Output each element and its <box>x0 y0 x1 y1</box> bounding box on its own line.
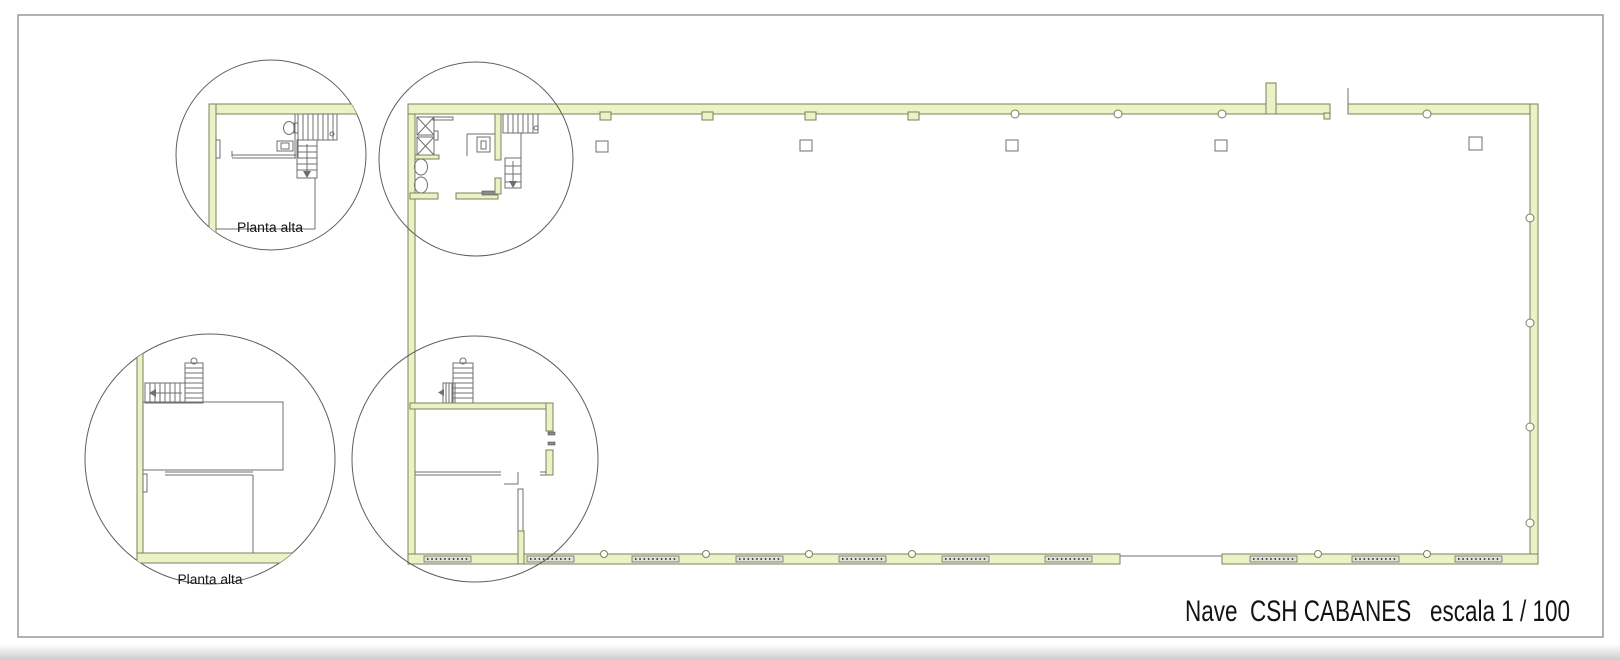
shower-icon <box>417 137 434 155</box>
detail-planta-alta-bottom: Planta alta <box>137 333 307 587</box>
room-wall <box>546 450 553 475</box>
room-wall <box>410 403 553 409</box>
door-jamb <box>216 140 220 158</box>
door-swing <box>504 472 518 484</box>
detail-circle-lower-ground <box>352 336 598 582</box>
partition-wall <box>415 155 439 159</box>
partition-wall <box>410 193 438 199</box>
pilasters <box>600 110 1534 558</box>
column <box>1006 140 1018 151</box>
stairs-icon <box>297 114 337 178</box>
partition-wall <box>495 178 501 194</box>
shower-icon <box>417 117 434 135</box>
window-mark <box>548 432 555 435</box>
service-rooms <box>410 114 538 199</box>
toilet-icon <box>284 122 299 135</box>
column <box>596 141 608 152</box>
window-mark <box>548 442 555 445</box>
column <box>800 140 812 151</box>
detail-planta-alta-top: Planta alta <box>209 104 360 235</box>
left-wall <box>408 104 415 564</box>
wall-stub <box>1266 83 1276 114</box>
toilet-icon <box>477 137 490 152</box>
stairs-icon <box>145 358 203 403</box>
door-jamb <box>434 131 438 140</box>
door-jamb <box>1324 113 1330 119</box>
room-edge <box>165 472 253 553</box>
ground-rooms <box>410 358 555 564</box>
top-wall-left-segment <box>408 104 1330 114</box>
outer-walls <box>408 83 1538 564</box>
column <box>1215 140 1227 151</box>
washbasin-icon <box>415 159 428 193</box>
planta-alta-label-top: Planta alta <box>237 220 304 235</box>
planta-alta-label-bottom: Planta alta <box>178 572 243 587</box>
washbasin-icon <box>277 141 293 151</box>
detail-left-wall <box>209 104 216 234</box>
detail-bottom-wall <box>137 553 307 563</box>
partition-wall <box>518 531 524 564</box>
right-wall <box>1530 104 1538 564</box>
top-wall-right-segment <box>1348 104 1538 114</box>
floor-plan-ground <box>408 83 1538 564</box>
room-wall <box>546 403 553 431</box>
mezzanine-edge <box>232 151 296 158</box>
detail-left-wall <box>137 333 143 563</box>
detail-top-wall <box>209 104 360 114</box>
partition-wall <box>495 114 501 160</box>
room-edge <box>415 472 546 475</box>
drawing-sheet: Planta alta Planta alta Nave CSH CABANES… <box>0 0 1620 660</box>
columns <box>596 137 1482 152</box>
door-jamb <box>143 474 147 492</box>
stairs-icon <box>438 358 473 403</box>
column <box>1469 137 1482 150</box>
stairs-icon <box>503 114 538 188</box>
door-stub <box>433 117 453 120</box>
detail-circle-lower-planta-alta <box>85 334 335 584</box>
room-outline <box>143 402 283 470</box>
drawing-title: Nave CSH CABANES escala 1 / 100 <box>1185 595 1570 628</box>
page-shadow <box>0 644 1620 660</box>
door-mark <box>518 489 523 531</box>
